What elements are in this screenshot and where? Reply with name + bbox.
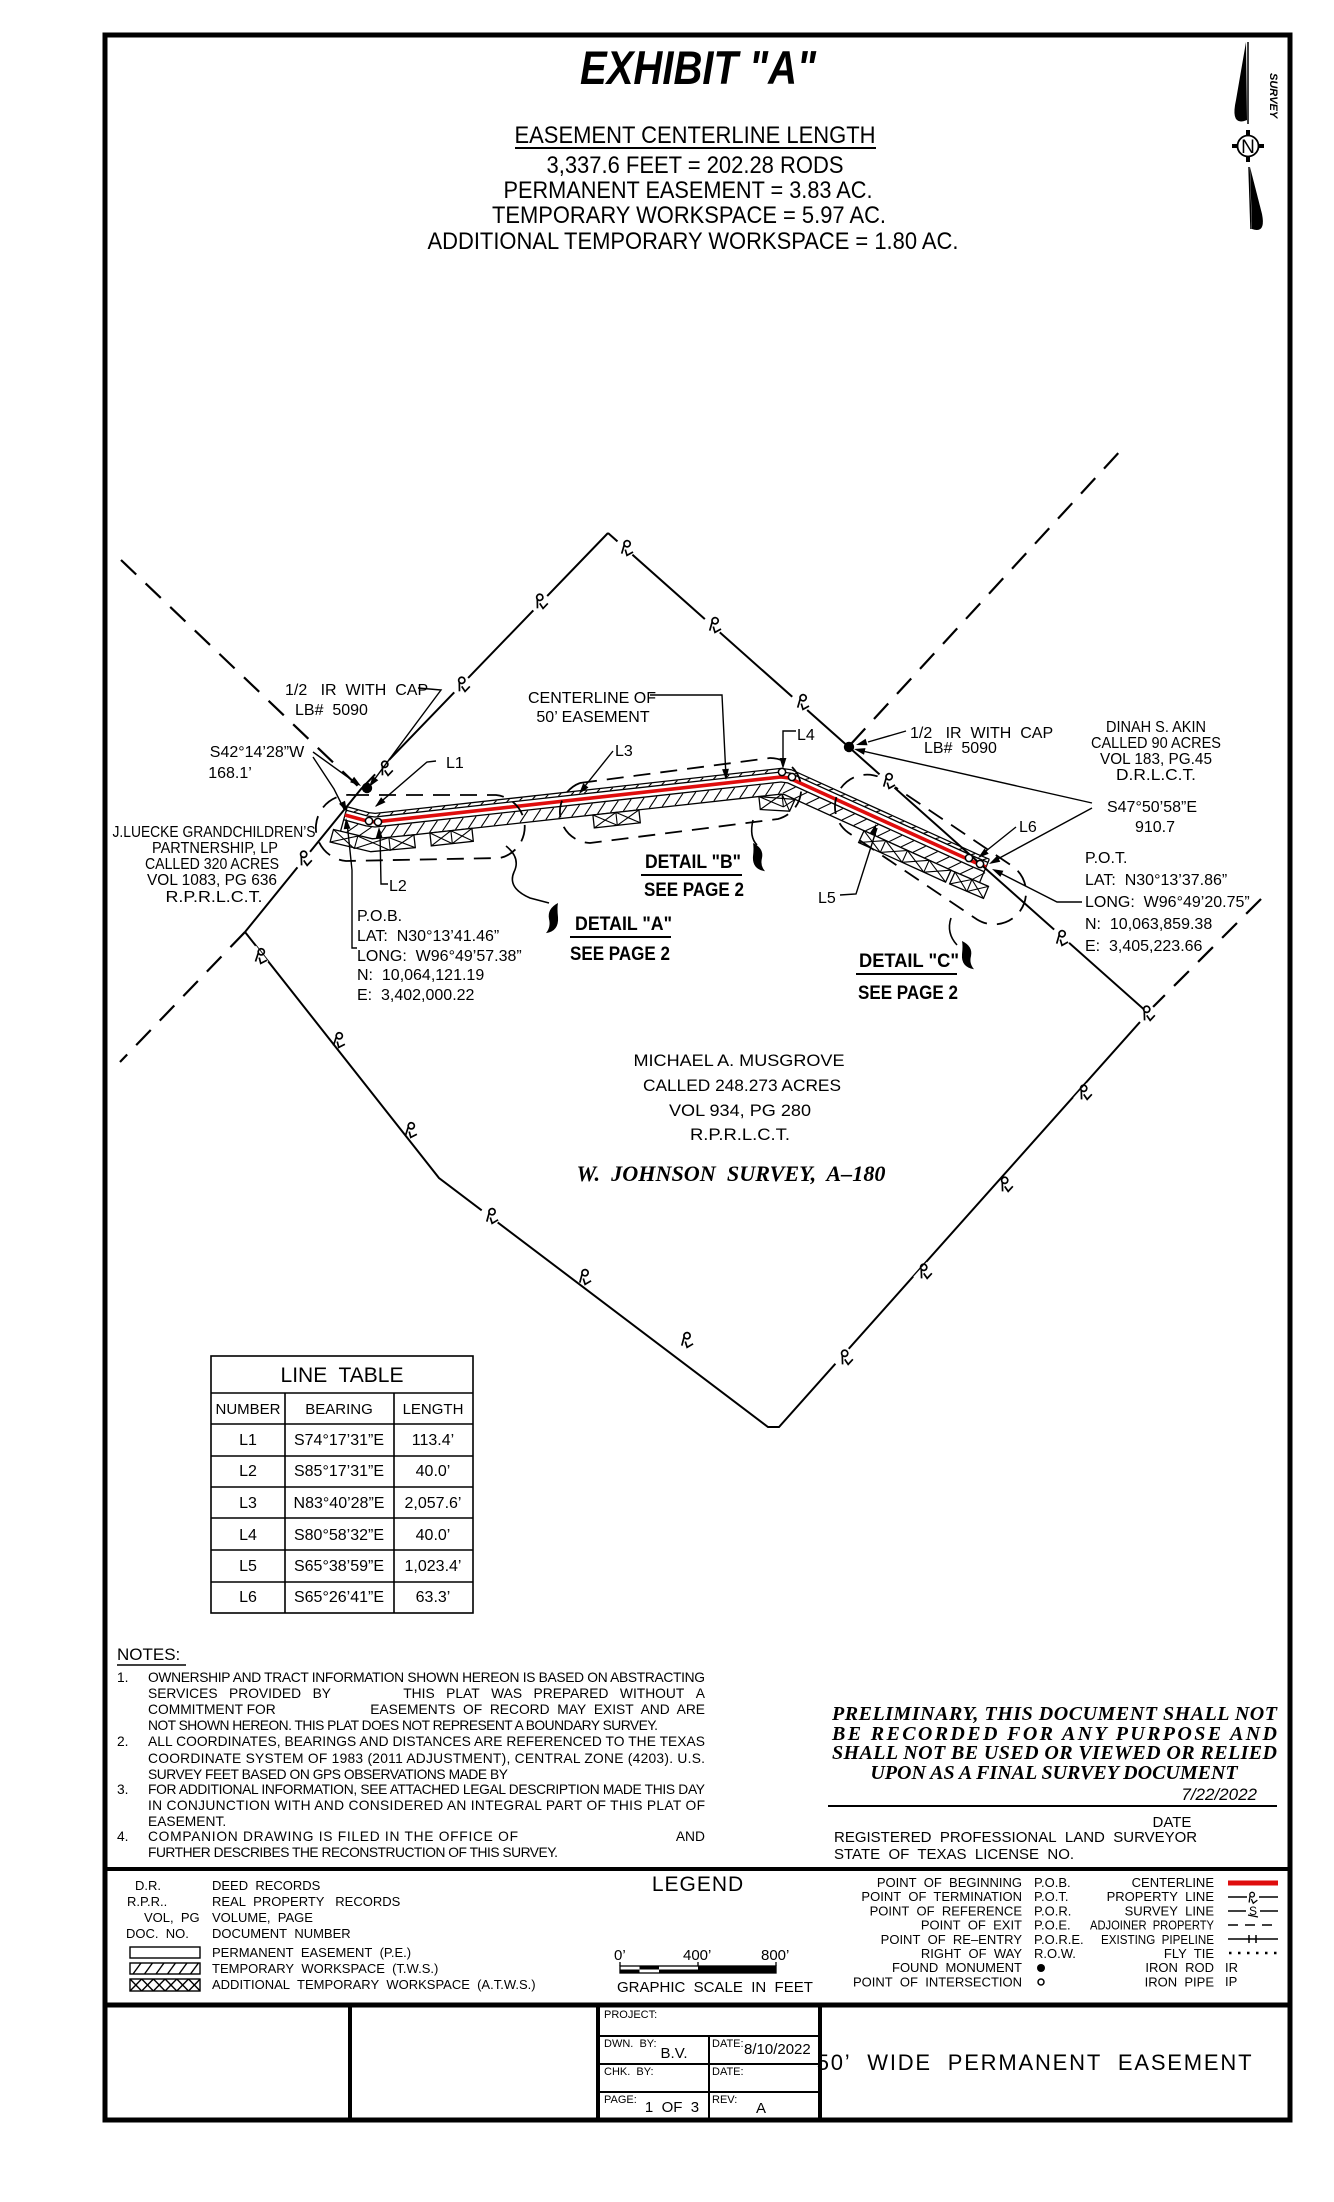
svg-text:L6: L6 — [1019, 819, 1037, 836]
svg-text:IP: IP — [1225, 1974, 1237, 1989]
svg-text:NUMBER: NUMBER — [215, 1401, 280, 1418]
svg-text:IN CONJUNCTION WITH AND CONSID: IN CONJUNCTION WITH AND CONSIDERED AN IN… — [148, 1798, 705, 1813]
svg-text:1.: 1. — [117, 1670, 129, 1685]
svg-text:ADDITIONAL TEMPORARY WORKSPA: ADDITIONAL TEMPORARY WORKSPACE (A.T.W.S.… — [212, 1977, 536, 1992]
svg-text:3,337.6 FEET = 202.28 RODS: 3,337.6 FEET = 202.28 RODS — [547, 152, 844, 179]
svg-text:COMMITMENT FOR: COMMITMENT FOR — [148, 1702, 276, 1717]
svg-text:EXHIBIT "A": EXHIBIT "A" — [580, 41, 817, 94]
svg-text:DOCUMENT NUMBER: DOCUMENT NUMBER — [212, 1926, 351, 1941]
svg-text:RIGHT OF WAY: RIGHT OF WAY — [921, 1946, 1022, 1961]
svg-text:S74°17’31”E: S74°17’31”E — [294, 1432, 384, 1449]
svg-text:L4: L4 — [239, 1527, 257, 1544]
svg-text:POINT OF BEGINNING: POINT OF BEGINNING — [877, 1875, 1022, 1890]
svg-text:SURVEY: SURVEY — [1267, 73, 1279, 120]
svg-text:LAT: N30°13’41.46”: LAT: N30°13’41.46” — [357, 928, 499, 945]
svg-text:VOLUME, PAGE: VOLUME, PAGE — [212, 1910, 313, 1925]
svg-text:IR: IR — [1225, 1960, 1238, 1975]
svg-text:0’: 0’ — [614, 1947, 626, 1964]
svg-text:SEE PAGE 2: SEE PAGE 2 — [858, 983, 958, 1004]
svg-text:STATE OF TEXAS LICENSE NO.: STATE OF TEXAS LICENSE NO. — [834, 1846, 1074, 1863]
svg-text:L1: L1 — [239, 1432, 257, 1449]
svg-text:PERMANENT EASEMENT = 3.83 AC.: PERMANENT EASEMENT = 3.83 AC. — [504, 177, 873, 204]
svg-text:THIS PLAT WAS PREPARED: THIS PLAT WAS PREPARED WITHOUT A — [403, 1686, 706, 1701]
svg-text:1,023.4’: 1,023.4’ — [405, 1558, 462, 1575]
svg-text:SERVICES PROVIDED BY: SERVICES PROVIDED BY — [148, 1686, 331, 1701]
svg-text:EASEMENT CENTERLINE LENGTH: EASEMENT CENTERLINE LENGTH — [515, 122, 876, 149]
svg-text:POINT OF REFERENCE: POINT OF REFERENCE — [870, 1903, 1023, 1918]
svg-text:TEMPORARY WORKSPACE (T.W.S.): TEMPORARY WORKSPACE (T.W.S.) — [212, 1961, 438, 1976]
svg-text:COORDINATE SYSTEM OF 1983 (201: COORDINATE SYSTEM OF 1983 (2011 ADJUSTME… — [148, 1751, 705, 1766]
svg-text:800’: 800’ — [761, 1947, 789, 1964]
svg-text:8/10/2022: 8/10/2022 — [744, 2041, 811, 2058]
svg-text:113.4’: 113.4’ — [412, 1432, 454, 1449]
svg-text:910.7: 910.7 — [1135, 819, 1175, 836]
svg-text:DETAIL "C": DETAIL "C" — [859, 951, 959, 972]
svg-text:P.O.T.: P.O.T. — [1034, 1889, 1068, 1904]
svg-text:400’: 400’ — [683, 1947, 711, 1964]
svg-text:ADDITIONAL TEMPORARY WORKSPACE: ADDITIONAL TEMPORARY WORKSPACE = 1.80 AC… — [428, 228, 959, 255]
svg-text:P.O.R.: P.O.R. — [1034, 1903, 1071, 1918]
svg-text:POINT OF RE–ENTRY: POINT OF RE–ENTRY — [881, 1932, 1023, 1947]
svg-text:40.0’: 40.0’ — [416, 1463, 451, 1480]
svg-text:VOL 934, PG 280: VOL 934, PG 280 — [669, 1101, 811, 1120]
svg-text:CENTERLINE OF: CENTERLINE OF — [528, 690, 656, 707]
svg-text:50’ EASEMENT: 50’ EASEMENT — [536, 709, 649, 726]
svg-text:L4: L4 — [797, 727, 815, 744]
svg-text:LB# 5090: LB# 5090 — [295, 702, 368, 719]
svg-text:IRON ROD: IRON ROD — [1145, 1960, 1214, 1975]
svg-text:NOT SHOWN HEREON. THIS PLAT DO: NOT SHOWN HEREON. THIS PLAT DOES NOT REP… — [148, 1718, 658, 1733]
svg-text:PRELIMINARY, THIS DOCUMENT SHA: PRELIMINARY, THIS DOCUMENT SHALL NOT — [831, 1703, 1278, 1725]
svg-text:S42°14’28”W: S42°14’28”W — [210, 744, 305, 761]
svg-text:3.: 3. — [117, 1782, 129, 1797]
svg-text:NOTES:: NOTES: — [117, 1645, 180, 1664]
svg-text:S80°58’32”E: S80°58’32”E — [294, 1527, 384, 1544]
svg-text:MICHAEL A. MUSGROVE: MICHAEL A. MUSGROVE — [634, 1051, 845, 1070]
svg-text:D.R.: D.R. — [135, 1878, 161, 1893]
svg-text:N83°40’28”E: N83°40’28”E — [294, 1495, 385, 1512]
svg-text:1/2 IR WITH CAP: 1/2 IR WITH CAP — [285, 682, 428, 699]
svg-text:R.P.R..: R.P.R.. — [127, 1894, 167, 1909]
svg-text:L5: L5 — [239, 1558, 257, 1575]
svg-text:PARTNERSHIP, LP: PARTNERSHIP, LP — [152, 840, 278, 857]
svg-text:TEMPORARY WORKSPACE = 5.97 AC.: TEMPORARY WORKSPACE = 5.97 AC. — [492, 202, 886, 229]
svg-text:EASEMENT.: EASEMENT. — [148, 1814, 226, 1829]
svg-text:P.O.T.: P.O.T. — [1085, 850, 1127, 867]
svg-text:DATE:: DATE: — [712, 2038, 744, 2050]
svg-text:ALL COORDINATES, BEARINGS AND: ALL COORDINATES, BEARINGS AND DISTANCES … — [148, 1734, 705, 1749]
svg-text:PROJECT:: PROJECT: — [604, 2009, 657, 2021]
svg-text:A: A — [756, 2100, 766, 2117]
svg-text:DETAIL "B": DETAIL "B" — [645, 852, 741, 873]
svg-text:IRON PIPE: IRON PIPE — [1145, 1974, 1215, 1989]
svg-text:DETAIL "A": DETAIL "A" — [575, 914, 672, 935]
svg-text:SEE PAGE 2: SEE PAGE 2 — [570, 944, 670, 965]
svg-text:DINAH S. AKIN: DINAH S. AKIN — [1106, 719, 1206, 736]
svg-text:LINE TABLE: LINE TABLE — [281, 1364, 404, 1387]
svg-text:S47°50’58”E: S47°50’58”E — [1107, 799, 1197, 816]
svg-text:N: N — [1241, 137, 1255, 158]
svg-text:L5: L5 — [818, 890, 836, 907]
svg-text:R.O.W.: R.O.W. — [1034, 1946, 1076, 1961]
svg-text:FURTHER DESCRIBES THE RECONSTR: FURTHER DESCRIBES THE RECONSTRUCTION OF … — [148, 1845, 558, 1860]
svg-text:SURVEY FEET BASED ON GPS OBSER: SURVEY FEET BASED ON GPS OBSERVATIONS MA… — [148, 1767, 508, 1782]
svg-text:40.0’: 40.0’ — [416, 1527, 451, 1544]
svg-text:DWN. BY:: DWN. BY: — [604, 2038, 657, 2050]
svg-text:CALLED 248.273 ACRES: CALLED 248.273 ACRES — [643, 1076, 841, 1095]
svg-text:REAL PROPERTY RECORDS: REAL PROPERTY RECORDS — [212, 1894, 401, 1909]
svg-text:FOUND MONUMENT: FOUND MONUMENT — [892, 1960, 1022, 1975]
svg-text:LEGEND: LEGEND — [652, 1873, 744, 1896]
svg-text:SEE PAGE 2: SEE PAGE 2 — [644, 880, 744, 901]
svg-text:LB# 5090: LB# 5090 — [924, 740, 997, 757]
svg-text:N: 10,063,859.38: N: 10,063,859.38 — [1085, 916, 1212, 933]
svg-text:P.O.B.: P.O.B. — [1034, 1875, 1071, 1890]
svg-text:4.: 4. — [117, 1829, 129, 1844]
svg-text:ADJOINER PROPERTY: ADJOINER PROPERTY — [1090, 1918, 1214, 1933]
svg-text:S65°26’41”E: S65°26’41”E — [294, 1589, 384, 1606]
svg-text:R.P.R.L.C.T.: R.P.R.L.C.T. — [690, 1125, 790, 1144]
svg-text:L3: L3 — [615, 743, 633, 760]
svg-text:168.1’: 168.1’ — [208, 765, 252, 782]
svg-text:DATE:: DATE: — [712, 2066, 744, 2078]
svg-text:R.P.R.L.C.T.: R.P.R.L.C.T. — [166, 889, 263, 906]
svg-text:J.LUECKE GRANDCHILDREN’S: J.LUECKE GRANDCHILDREN’S — [113, 824, 316, 841]
svg-text:VOL 183, PG.45: VOL 183, PG.45 — [1100, 751, 1212, 768]
svg-text:LONG: W96°49’57.38”: LONG: W96°49’57.38” — [357, 948, 522, 965]
svg-text:LONG: W96°49’20.75”: LONG: W96°49’20.75” — [1085, 894, 1250, 911]
svg-text:REGISTERED PROFESSIONAL LAND: REGISTERED PROFESSIONAL LAND SURVEYOR — [834, 1829, 1197, 1846]
svg-text:D.R.L.C.T.: D.R.L.C.T. — [1116, 767, 1196, 784]
svg-text:CHK. BY:: CHK. BY: — [604, 2066, 654, 2078]
svg-text:S85°17’31”E: S85°17’31”E — [294, 1463, 384, 1480]
svg-text:LENGTH: LENGTH — [403, 1401, 464, 1418]
svg-text:POINT OF INTERSECTION: POINT OF INTERSECTION — [853, 1974, 1022, 1989]
svg-text:AND: AND — [676, 1829, 705, 1844]
svg-text:CENTERLINE: CENTERLINE — [1132, 1875, 1215, 1890]
svg-text:FLY TIE: FLY TIE — [1164, 1946, 1214, 1961]
svg-text:DOC. NO.: DOC. NO. — [126, 1926, 189, 1941]
svg-text:SHALL NOT BE USED OR VIEWED OR: SHALL NOT BE USED OR VIEWED OR RELIED — [832, 1742, 1277, 1764]
svg-text:L3: L3 — [239, 1495, 257, 1512]
svg-text:50’ WIDE PERMANENT EASEMENT: 50’ WIDE PERMANENT EASEMENT — [817, 2050, 1254, 2075]
svg-text:63.3’: 63.3’ — [416, 1589, 451, 1606]
svg-text:N: 10,064,121.19: N: 10,064,121.19 — [357, 967, 484, 984]
svg-text:EXISTING PIPELINE: EXISTING PIPELINE — [1101, 1932, 1214, 1947]
svg-text:VOL, PG: VOL, PG — [144, 1910, 200, 1925]
svg-text:LAT: N30°13’37.86”: LAT: N30°13’37.86” — [1085, 872, 1227, 889]
svg-text:SURVEY LINE: SURVEY LINE — [1125, 1903, 1215, 1918]
svg-text:DEED RECORDS: DEED RECORDS — [212, 1878, 321, 1893]
svg-text:FOR ADDITIONAL INFORMATION, SE: FOR ADDITIONAL INFORMATION, SEE ATTACHED… — [148, 1782, 705, 1797]
svg-text:PROPERTY LINE: PROPERTY LINE — [1107, 1889, 1215, 1904]
svg-text:PERMANENT EASEMENT (P.E.): PERMANENT EASEMENT (P.E.) — [212, 1945, 411, 1960]
svg-text:L6: L6 — [239, 1589, 257, 1606]
svg-text:2,057.6’: 2,057.6’ — [405, 1495, 462, 1512]
svg-text:E: 3,405,223.66: E: 3,405,223.66 — [1085, 938, 1203, 955]
svg-text:PAGE:: PAGE: — [604, 2094, 637, 2106]
svg-text:L2: L2 — [239, 1463, 257, 1480]
svg-text:W. JOHNSON SURVEY, A–180: W. JOHNSON SURVEY, A–180 — [577, 1161, 886, 1186]
svg-text:REV:: REV: — [712, 2094, 737, 2106]
svg-text:POINT OF EXIT: POINT OF EXIT — [921, 1918, 1022, 1933]
svg-text:GRAPHIC SCALE IN FEET: GRAPHIC SCALE IN FEET — [617, 1979, 813, 1996]
svg-text:1 OF 3: 1 OF 3 — [645, 2099, 699, 2116]
svg-text:POINT OF TERMINATION: POINT OF TERMINATION — [861, 1889, 1022, 1904]
svg-text:P.O.R.E.: P.O.R.E. — [1034, 1932, 1084, 1947]
svg-text:UPON AS A FINAL SURVEY DOCUMEN: UPON AS A FINAL SURVEY DOCUMENT — [870, 1762, 1238, 1784]
svg-text:7/22/2022: 7/22/2022 — [1181, 1785, 1257, 1804]
svg-text:B.V.: B.V. — [661, 2045, 688, 2062]
svg-text:L1: L1 — [446, 755, 464, 772]
svg-text:BEARING: BEARING — [305, 1401, 373, 1418]
svg-text:COMPANION DRAWING IS FILED IN: COMPANION DRAWING IS FILED IN THE OFFICE… — [148, 1829, 518, 1844]
svg-text:CALLED 320 ACRES: CALLED 320 ACRES — [145, 856, 279, 873]
svg-text:P.O.B.: P.O.B. — [357, 908, 402, 925]
svg-text:S65°38’59”E: S65°38’59”E — [294, 1558, 384, 1575]
svg-text:2.: 2. — [117, 1734, 129, 1749]
svg-text:VOL 1083, PG 636: VOL 1083, PG 636 — [147, 872, 277, 889]
svg-text:CALLED 90 ACRES: CALLED 90 ACRES — [1091, 735, 1221, 752]
svg-text:EASEMENTS OF RECORD MAY EX: EASEMENTS OF RECORD MAY EXIST AND ARE — [370, 1702, 705, 1717]
svg-text:E: 3,402,000.22: E: 3,402,000.22 — [357, 987, 475, 1004]
svg-text:OWNERSHIP AND TRACT INFORMATIO: OWNERSHIP AND TRACT INFORMATION SHOWN HE… — [148, 1670, 705, 1685]
svg-text:L2: L2 — [389, 878, 407, 895]
svg-text:P.O.E.: P.O.E. — [1034, 1918, 1071, 1933]
